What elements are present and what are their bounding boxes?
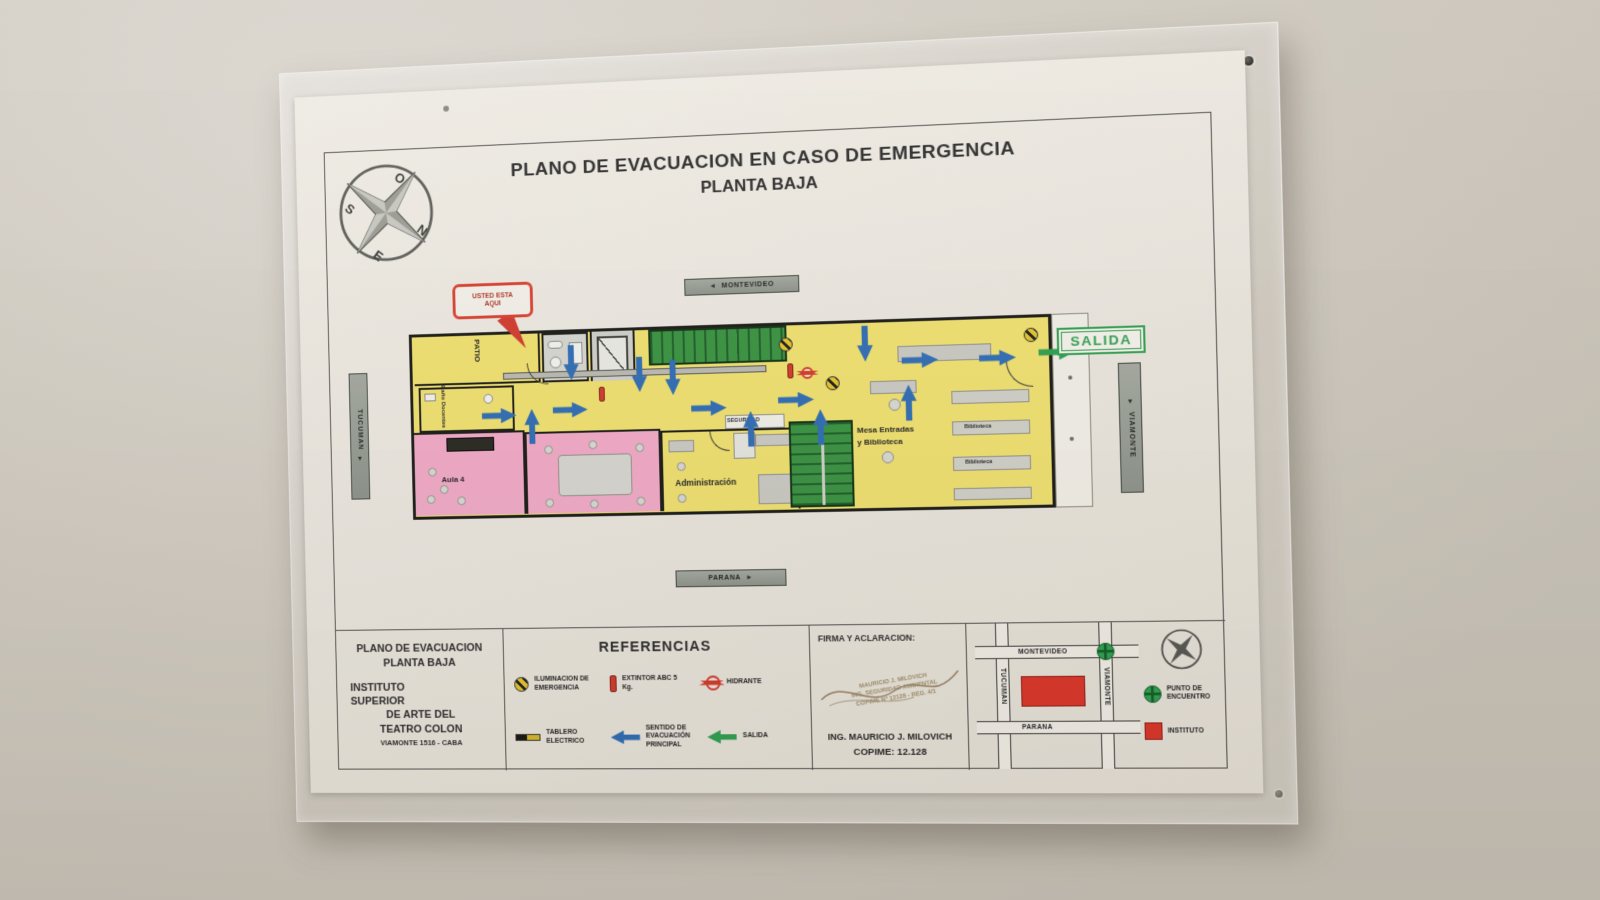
legend-label: ENCUENTRO xyxy=(1167,694,1211,703)
chair xyxy=(635,443,644,452)
exit-arrow-icon xyxy=(707,729,737,744)
hydrant-icon xyxy=(801,367,813,379)
tablero-electrico xyxy=(446,437,494,452)
chair xyxy=(888,398,900,410)
signer-name: ING. MAURICIO J. MILOVICH xyxy=(812,731,968,742)
street-viamonte: ▼ VIAMONTE xyxy=(1118,362,1144,493)
chair xyxy=(457,496,466,505)
room-label-mesa2: y Biblioteca xyxy=(857,437,903,447)
institute-marker xyxy=(1021,676,1086,707)
chair xyxy=(678,494,687,503)
legend-label: INSTITUTO xyxy=(1168,727,1204,736)
emlight-icon xyxy=(1024,328,1039,343)
mini-compass-icon xyxy=(1159,627,1204,671)
evacuation-plan-board: O N E S PLANO DE EVACUACION EN CASO DE E… xyxy=(279,22,1298,825)
room-label-administracion: Administración xyxy=(675,477,736,488)
plan-title: PLANO DE EVACUACION EN CASO DE EMERGENCI… xyxy=(438,134,1095,208)
street-parana: PARANA ► xyxy=(675,569,786,588)
reference-item: HIDRANTE xyxy=(706,674,804,692)
street-arrow-icon: ▼ xyxy=(1126,398,1134,406)
map-legend-item: PUNTO DE ENCUENTRO xyxy=(1167,685,1211,703)
legend-table: PLANO DE EVACUACION PLANTA BAJA INSTITUT… xyxy=(336,620,1229,771)
chair xyxy=(588,440,597,449)
org-line: DE ARTE DEL xyxy=(338,708,505,723)
room-banio-docentes xyxy=(419,385,515,433)
room-administracion xyxy=(660,427,800,511)
you-are-here-line2: AQUI xyxy=(484,300,500,307)
location-map: MONTEVIDEO PARANA TUCUMAN VIAMONTE PUN xyxy=(966,621,1229,770)
evacuation-plan-sheet: O N E S PLANO DE EVACUACION EN CASO DE E… xyxy=(294,50,1263,793)
bookshelf xyxy=(951,389,1029,404)
references-block: REFERENCIAS ILUMINACION DE EMERGENCIA EX… xyxy=(503,626,813,771)
signature-title: FIRMA Y ACLARACION: xyxy=(810,624,966,644)
you-are-here-line1: USTED ESTA xyxy=(472,292,513,300)
bookshelf xyxy=(954,487,1032,501)
street-arrow-icon: ► xyxy=(746,574,754,581)
map-street-label: TUCUMAN xyxy=(999,668,1007,704)
reference-label: HIDRANTE xyxy=(727,678,762,687)
chair xyxy=(440,485,449,494)
punch-hole xyxy=(443,106,449,112)
reference-label: SALIDA xyxy=(743,733,768,742)
room-label-banio: Baño Docentes xyxy=(439,385,446,428)
reference-item: SALIDA xyxy=(707,724,806,750)
exit-sign-label: SALIDA xyxy=(1061,329,1142,351)
room-label-mesa1: Mesa Entradas xyxy=(857,424,914,434)
reference-item: ILUMINACION DE EMERGENCIA xyxy=(514,675,610,692)
info-title2: PLANTA BAJA xyxy=(337,655,504,671)
reference-label: SENTIDO DE EVACUACIÓN PRINCIPAL xyxy=(646,724,708,750)
references-title: REFERENCIAS xyxy=(504,638,810,657)
reference-label: ILUMINACION DE EMERGENCIA xyxy=(534,675,598,692)
map-street-label: PARANA xyxy=(1022,724,1053,731)
staircase-top xyxy=(648,325,787,365)
exit-sign: SALIDA xyxy=(1057,325,1146,355)
chair xyxy=(590,500,599,509)
room-label-biblioteca2: Biblioteca xyxy=(965,459,992,466)
map-legend-item: INSTITUTO xyxy=(1168,727,1204,736)
map-street-label: MONTEVIDEO xyxy=(1018,648,1067,656)
chair xyxy=(677,462,686,471)
org-line: SUPERIOR xyxy=(337,694,504,709)
room-label-biblioteca1: Biblioteca xyxy=(964,423,991,430)
callout-box: USTED ESTA AQUI xyxy=(452,282,533,320)
extintor-icon xyxy=(787,363,793,378)
evacuation-arrow-icon xyxy=(611,730,641,745)
chair xyxy=(428,468,437,477)
evacuation-arrow xyxy=(553,401,588,419)
screw-icon xyxy=(1275,790,1283,797)
emlight-icon xyxy=(779,337,793,351)
street-label: PARANA xyxy=(708,574,741,581)
institute-icon xyxy=(1144,722,1162,740)
map-street-label: VIAMONTE xyxy=(1102,667,1110,705)
hall-dot xyxy=(1070,437,1074,441)
table xyxy=(558,453,633,496)
evacuation-arrow xyxy=(778,391,814,409)
evacuation-arrow xyxy=(856,325,874,362)
hydrant-icon xyxy=(706,675,721,690)
chair xyxy=(882,451,894,463)
plan-frame: O N E S PLANO DE EVACUACION EN CASO DE E… xyxy=(324,112,1228,770)
street-montevideo: ◄ MONTEVIDEO xyxy=(684,275,799,296)
you-are-here-callout: USTED ESTA AQUI xyxy=(452,282,533,328)
room-meeting xyxy=(525,429,663,514)
building: PATIO Baño Docentes xyxy=(409,314,1056,520)
room-label-aula4: Aula 4 xyxy=(442,475,465,484)
chair xyxy=(544,445,553,454)
reference-item: SENTIDO DE EVACUACIÓN PRINCIPAL xyxy=(610,724,707,750)
reference-item: TABLERO ELECTRICO xyxy=(515,725,611,750)
electric-panel-icon xyxy=(515,734,540,741)
chair xyxy=(545,498,554,507)
extintor-icon xyxy=(599,387,605,402)
street-tucuman: TUCUMAN ▼ xyxy=(349,373,371,500)
sink xyxy=(424,393,436,401)
legend-label: PUNTO DE xyxy=(1167,685,1211,694)
toilet xyxy=(483,394,493,404)
street-label: VIAMONTE xyxy=(1127,411,1135,457)
reference-label: EXTINTOR ABC 5 Kg. xyxy=(622,675,687,692)
chair xyxy=(427,495,436,504)
toilet xyxy=(550,356,562,368)
info-title1: PLANO DE EVACUACION xyxy=(336,641,503,657)
signer-license: COPIME: 12.128 xyxy=(812,747,968,758)
meeting-point-marker xyxy=(1097,643,1115,661)
street-arrow-icon: ◄ xyxy=(709,283,717,290)
room-aula4 xyxy=(414,430,527,516)
street-label: MONTEVIDEO xyxy=(721,281,774,290)
compass-e: E xyxy=(371,247,387,264)
evacuation-arrow xyxy=(691,399,727,417)
sink xyxy=(547,341,563,349)
emlight-icon xyxy=(825,376,839,390)
room-label-patio: PATIO xyxy=(473,339,482,362)
chair xyxy=(636,497,645,506)
extinguisher-icon xyxy=(609,675,616,692)
org-line: TEATRO COLON xyxy=(338,722,505,737)
org-line: INSTITUTO xyxy=(337,680,504,695)
hall-dot xyxy=(1068,375,1072,379)
org-address: VIAMONTE 1516 - CABA xyxy=(338,738,505,747)
wall-photo: { "title": { "line1": "PLANO DE EVACUACI… xyxy=(0,0,1600,900)
info-block: PLANO DE EVACUACION PLANTA BAJA INSTITUT… xyxy=(336,629,507,771)
desk xyxy=(668,440,694,453)
map-road-parana xyxy=(977,720,1141,734)
reference-label: TABLERO ELECTRICO xyxy=(546,729,610,746)
street-label: TUCUMAN xyxy=(356,409,364,450)
compass-rose: O N E S xyxy=(332,156,440,269)
reference-item: EXTINTOR ABC 5 Kg. xyxy=(609,675,706,693)
signature-block: FIRMA Y ACLARACION: MAURICIO J. MILOVICH… xyxy=(810,624,970,770)
emergency-light-icon xyxy=(514,677,529,692)
street-arrow-icon: ▼ xyxy=(357,455,364,463)
meeting-point-icon xyxy=(1144,685,1162,703)
compass-s: S xyxy=(342,200,357,217)
door-arc xyxy=(1006,360,1033,387)
